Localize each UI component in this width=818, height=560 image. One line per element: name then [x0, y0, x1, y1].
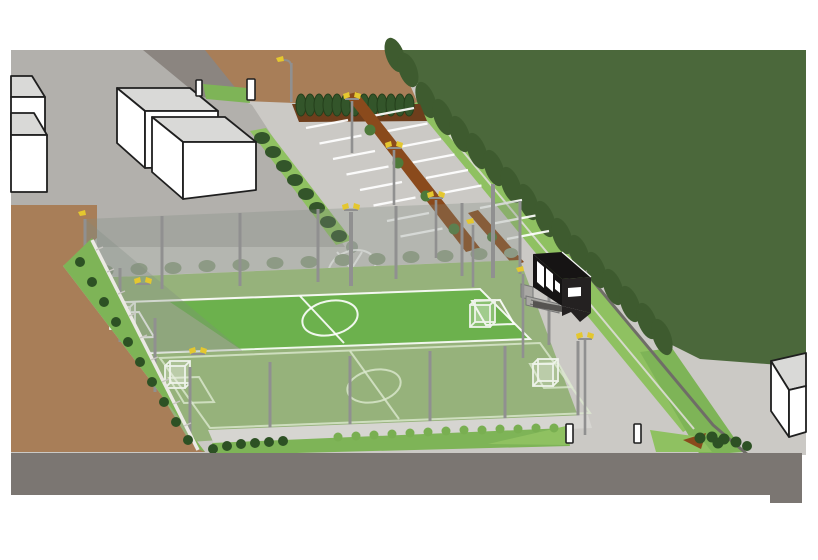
bollard-top-2	[247, 79, 255, 100]
bollard-driveway-right	[634, 424, 641, 443]
building-partial-left-lower	[11, 113, 47, 192]
road-sidewalk-step	[770, 495, 802, 503]
road-surface	[11, 453, 802, 495]
illustration-canvas	[0, 0, 818, 560]
bollard-driveway-left	[566, 424, 573, 443]
bollard-top-1	[196, 80, 202, 96]
site-plan-rendering	[0, 0, 818, 560]
building-top-middle-front	[152, 117, 256, 199]
